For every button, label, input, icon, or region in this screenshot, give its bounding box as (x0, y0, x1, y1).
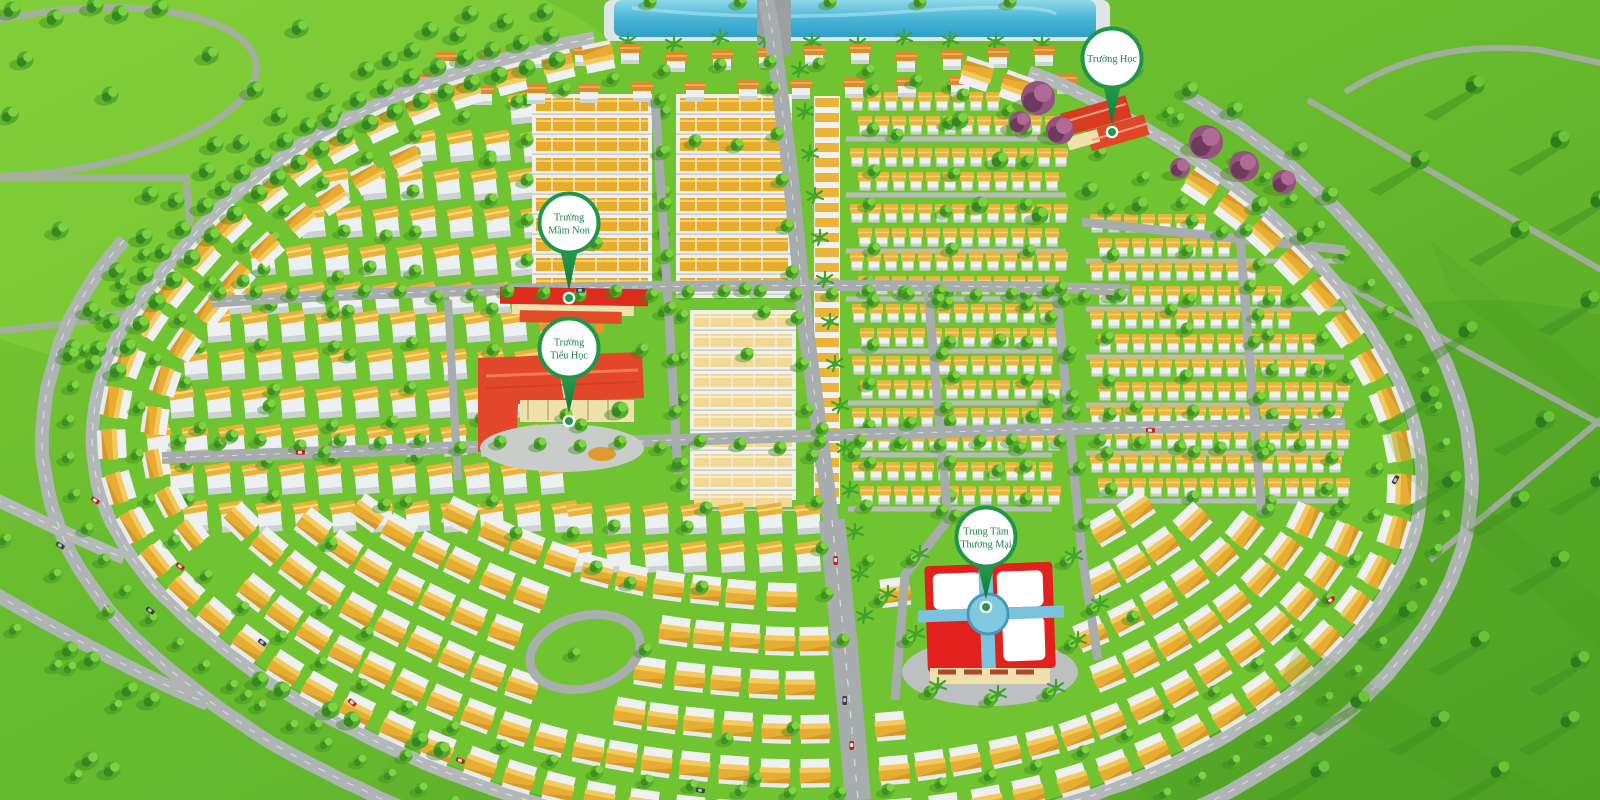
svg-text:Trung Tâm: Trung Tâm (963, 526, 1009, 537)
svg-text:Mầm Non: Mầm Non (548, 225, 590, 236)
svg-text:Trường: Trường (554, 337, 584, 348)
svg-text:Trường Học: Trường Học (1087, 54, 1137, 65)
svg-text:Thương Mại: Thương Mại (960, 539, 1012, 550)
svg-text:Trường: Trường (554, 212, 584, 223)
svg-text:Tiểu Học: Tiểu Học (550, 350, 588, 361)
